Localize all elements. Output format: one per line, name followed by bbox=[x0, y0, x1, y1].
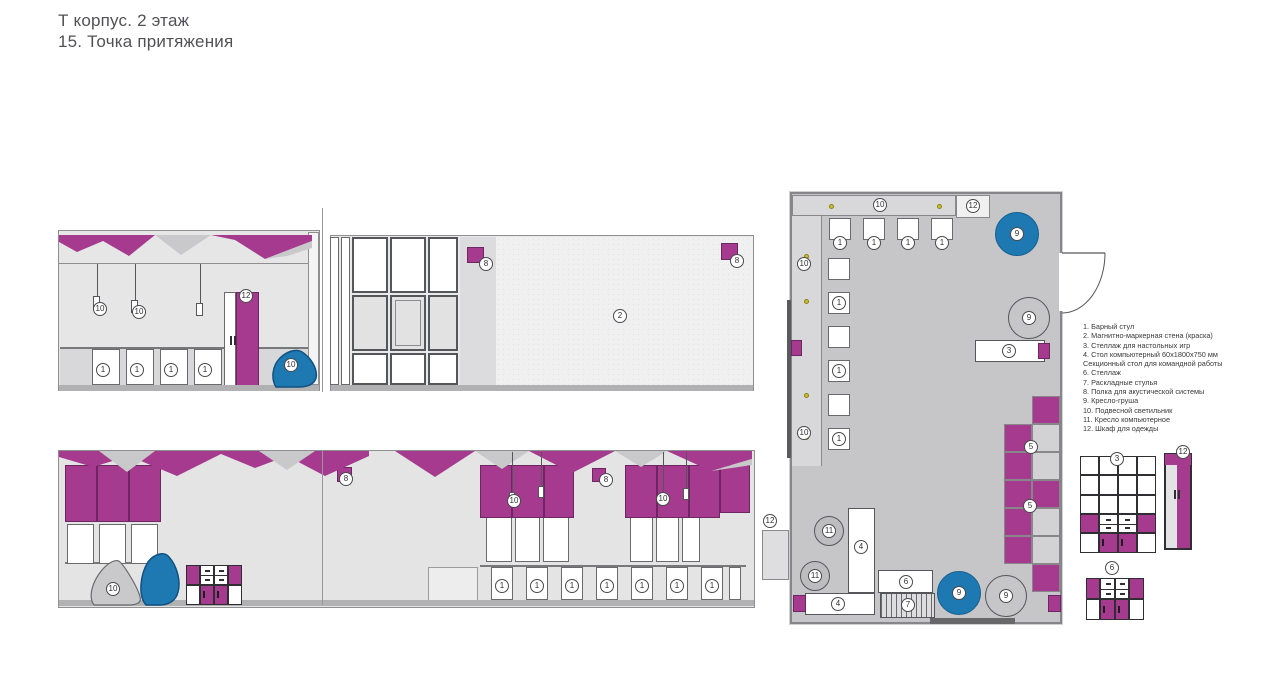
wardrobe bbox=[236, 292, 259, 386]
detail-wardrobe-door bbox=[1177, 465, 1190, 548]
legend-item: 8. Полка для акустической системы bbox=[1083, 387, 1280, 396]
acoustic-shelf-plan bbox=[793, 595, 806, 612]
marker-10: 10 bbox=[132, 305, 146, 319]
detail-wardrobe-door bbox=[1166, 465, 1177, 548]
cabinet-cell bbox=[1115, 599, 1129, 620]
shelf-cell bbox=[1080, 495, 1099, 514]
legend-item: 9. Кресло-груша bbox=[1083, 396, 1280, 405]
marker-10: 10 bbox=[93, 302, 107, 316]
window-panel bbox=[352, 353, 388, 385]
acoustic-shelf-plan bbox=[1048, 595, 1061, 612]
zigzag-ceiling-decor bbox=[59, 451, 752, 485]
window-panel bbox=[428, 295, 458, 351]
marker-6: 6 bbox=[899, 575, 913, 589]
marker-12: 12 bbox=[966, 199, 980, 213]
drawer-handle bbox=[1120, 583, 1125, 585]
shelf-cell bbox=[1099, 533, 1118, 553]
bar-stool-plan bbox=[828, 326, 850, 348]
pendant-cord bbox=[135, 264, 136, 300]
marker-9: 9 bbox=[1010, 227, 1024, 241]
marker-8: 8 bbox=[339, 472, 353, 486]
pendant-cord bbox=[97, 264, 98, 296]
marker-1: 1 bbox=[530, 579, 544, 593]
shelf-cell bbox=[1118, 514, 1137, 533]
legend-item: 3. Стеллаж для настольных игр bbox=[1083, 341, 1280, 350]
wall-column bbox=[330, 237, 339, 385]
shelf-cell bbox=[1137, 456, 1156, 475]
marker-9: 9 bbox=[999, 589, 1013, 603]
legend-item: 10. Подвесной светильник bbox=[1083, 406, 1280, 415]
marker-1: 1 bbox=[130, 363, 144, 377]
pendant-cord bbox=[512, 452, 513, 492]
marker-1: 1 bbox=[832, 432, 846, 446]
light-dot bbox=[804, 393, 809, 398]
sectional-table-module bbox=[1032, 536, 1060, 564]
window-panel bbox=[352, 295, 388, 351]
marker-10: 10 bbox=[284, 358, 298, 372]
legend-item: 1. Барный стул bbox=[1083, 322, 1280, 331]
marker-8: 8 bbox=[479, 257, 493, 271]
pendant-light bbox=[538, 486, 544, 498]
shelf-cell bbox=[1137, 475, 1156, 495]
legend-item: 11. Кресло компьютерное bbox=[1083, 415, 1280, 424]
light-dot bbox=[937, 204, 942, 209]
legend-item: 6. Стеллаж bbox=[1083, 368, 1280, 377]
marker-10: 10 bbox=[797, 257, 811, 271]
marker-1: 1 bbox=[164, 363, 178, 377]
drawer-handle bbox=[1125, 519, 1130, 521]
wardrobe-handle bbox=[1178, 490, 1180, 499]
shelf-cell bbox=[1080, 456, 1099, 475]
door-handle bbox=[217, 591, 219, 598]
shelf-cell bbox=[1099, 514, 1118, 533]
window-panel bbox=[390, 237, 426, 293]
cabinet-cell bbox=[1115, 578, 1129, 599]
shelf-cell bbox=[1099, 475, 1118, 495]
light-dot bbox=[829, 204, 834, 209]
marker-11: 11 bbox=[822, 524, 836, 538]
drawer-divider bbox=[1119, 524, 1136, 525]
marker-1: 1 bbox=[495, 579, 509, 593]
marker-10: 10 bbox=[656, 492, 670, 506]
door-handle bbox=[1121, 539, 1123, 546]
door-handle bbox=[1102, 539, 1104, 546]
drawer-handle bbox=[1106, 519, 1111, 521]
drawer-handle bbox=[219, 570, 224, 572]
window-panel bbox=[390, 353, 426, 385]
page-title: Т корпус. 2 этаж 15. Точка притяжения bbox=[58, 10, 233, 52]
legend-item: Секционный стол для командной работы bbox=[1083, 359, 1280, 368]
section-divider-line bbox=[322, 451, 323, 605]
drawer-handle bbox=[205, 570, 210, 572]
wall-column bbox=[341, 237, 350, 385]
drawer-divider bbox=[215, 575, 227, 576]
shelf-cell bbox=[1080, 475, 1099, 495]
shelf-cell bbox=[1080, 533, 1099, 553]
light-dot bbox=[804, 299, 809, 304]
marker-1: 1 bbox=[96, 363, 110, 377]
marker-3: 3 bbox=[1110, 452, 1124, 466]
marker-2: 2 bbox=[613, 309, 627, 323]
drawer-handle bbox=[1106, 583, 1111, 585]
window-panel bbox=[428, 353, 458, 385]
boardgame-shelf-end bbox=[1038, 343, 1050, 359]
marker-9: 9 bbox=[1022, 311, 1036, 325]
title-line-1: Т корпус. 2 этаж bbox=[58, 10, 233, 31]
drawer-handle bbox=[1106, 593, 1111, 595]
drawer-divider bbox=[1116, 589, 1128, 590]
pendant-light bbox=[196, 303, 203, 316]
window-panel bbox=[428, 237, 458, 293]
marker-1: 1 bbox=[901, 236, 915, 250]
cabinet-cell bbox=[1086, 578, 1100, 599]
marker-10: 10 bbox=[106, 582, 120, 596]
sectional-table-module bbox=[1032, 452, 1060, 480]
shelf-cell bbox=[1080, 514, 1099, 533]
marker-7: 7 bbox=[901, 598, 915, 612]
cabinet-cell bbox=[1086, 599, 1100, 620]
plan-sheet: Т корпус. 2 этаж 15. Точка притяжения bbox=[0, 0, 1280, 683]
door-arc bbox=[1062, 252, 1108, 315]
cabinet-cell bbox=[200, 565, 214, 585]
marker-1: 1 bbox=[198, 363, 212, 377]
section-divider-line bbox=[322, 208, 323, 392]
wardrobe-outside bbox=[762, 530, 789, 580]
marker-12: 12 bbox=[763, 514, 777, 528]
marker-1: 1 bbox=[600, 579, 614, 593]
cabinet-cell bbox=[214, 585, 228, 605]
pendant-cord bbox=[541, 452, 542, 486]
drawer-handle bbox=[205, 579, 210, 581]
marker-1: 1 bbox=[635, 579, 649, 593]
marker-1: 1 bbox=[670, 579, 684, 593]
marker-9: 9 bbox=[952, 586, 966, 600]
marker-1: 1 bbox=[705, 579, 719, 593]
marker-4: 4 bbox=[831, 597, 845, 611]
cabinet-cell bbox=[214, 565, 228, 585]
shelf-cell bbox=[1099, 495, 1118, 514]
cabinet-cell bbox=[1100, 578, 1115, 599]
title-line-2: 15. Точка притяжения bbox=[58, 31, 233, 52]
marker-10: 10 bbox=[873, 198, 887, 212]
marker-1: 1 bbox=[833, 236, 847, 250]
zigzag-ceiling-decor bbox=[59, 232, 312, 262]
sectional-table-module bbox=[1004, 452, 1032, 480]
legend-item: 12. Шкаф для одежды bbox=[1083, 424, 1280, 433]
cabinet-cell bbox=[228, 585, 242, 605]
marker-1: 1 bbox=[867, 236, 881, 250]
window-band-bottom bbox=[930, 618, 1015, 624]
window-panel bbox=[352, 237, 388, 293]
marker-10: 10 bbox=[507, 494, 521, 508]
drawer-divider bbox=[201, 575, 213, 576]
bar-stool-plan bbox=[828, 394, 850, 416]
cabinet-cell bbox=[1129, 599, 1144, 620]
drawer-divider bbox=[1100, 524, 1117, 525]
marker-12: 12 bbox=[1176, 445, 1190, 459]
drawer-handle bbox=[1120, 593, 1125, 595]
legend-item: 4. Стол компьютерный 60х1800х750 мм bbox=[1083, 350, 1280, 359]
marker-1: 1 bbox=[832, 296, 846, 310]
marker-3: 3 bbox=[1002, 344, 1016, 358]
sectional-table-module bbox=[1004, 536, 1032, 564]
marker-1: 1 bbox=[565, 579, 579, 593]
marker-6: 6 bbox=[1105, 561, 1119, 575]
door-handle bbox=[1103, 606, 1105, 613]
wall-column bbox=[729, 567, 741, 600]
acoustic-shelf-plan bbox=[791, 340, 802, 356]
pendant-cord bbox=[686, 452, 687, 488]
marker-5: 5 bbox=[1024, 440, 1038, 454]
shelf-cell bbox=[1118, 475, 1137, 495]
marker-4: 4 bbox=[854, 540, 868, 554]
cabinet-cell bbox=[1129, 578, 1144, 599]
legend: 1. Барный стул2. Магнитно-маркерная стен… bbox=[1083, 322, 1280, 434]
drawer-divider bbox=[1101, 589, 1114, 590]
shelf-cell bbox=[1137, 533, 1156, 553]
marker-5: 5 bbox=[1023, 499, 1037, 513]
wardrobe-handle bbox=[230, 336, 232, 345]
marker-1: 1 bbox=[935, 236, 949, 250]
marker-1: 1 bbox=[832, 364, 846, 378]
pendant-cord bbox=[663, 452, 664, 494]
cabinet-cell bbox=[186, 565, 200, 585]
legend-item: 7. Раскладные стулья bbox=[1083, 378, 1280, 387]
shelf-cell bbox=[1137, 514, 1156, 533]
wardrobe-handle bbox=[1174, 490, 1176, 499]
shelf-cell bbox=[1118, 495, 1137, 514]
sectional-table-module bbox=[1032, 396, 1060, 424]
shelf-cell bbox=[1137, 495, 1156, 514]
table-outline bbox=[428, 567, 478, 602]
drawer-handle bbox=[1125, 527, 1130, 529]
window-panel-inner bbox=[395, 300, 421, 346]
pendant-cord bbox=[200, 264, 201, 303]
marker-10: 10 bbox=[797, 426, 811, 440]
cabinet-cell bbox=[200, 585, 214, 605]
floor-line bbox=[331, 385, 753, 391]
bar-stool-plan bbox=[828, 258, 850, 280]
cabinet-cell bbox=[186, 585, 200, 605]
wardrobe-handle bbox=[234, 336, 236, 345]
marker-11: 11 bbox=[808, 569, 822, 583]
legend-item: 2. Магнитно-маркерная стена (краска) bbox=[1083, 331, 1280, 340]
sectional-table-module bbox=[1032, 564, 1060, 592]
shelf-cell bbox=[1118, 533, 1137, 553]
drawer-handle bbox=[1106, 527, 1111, 529]
cabinet-cell bbox=[228, 565, 242, 585]
cabinet-cell bbox=[1100, 599, 1115, 620]
pendant-light bbox=[683, 488, 689, 500]
door-handle bbox=[1118, 606, 1120, 613]
drawer-handle bbox=[219, 579, 224, 581]
marker-8: 8 bbox=[599, 473, 613, 487]
window-band bbox=[787, 300, 791, 458]
bean-bag-chair bbox=[136, 550, 184, 606]
window-panel bbox=[390, 295, 426, 351]
marker-12: 12 bbox=[239, 289, 253, 303]
marker-8: 8 bbox=[730, 254, 744, 268]
sectional-table-module bbox=[1032, 508, 1060, 536]
door-handle bbox=[203, 591, 205, 598]
